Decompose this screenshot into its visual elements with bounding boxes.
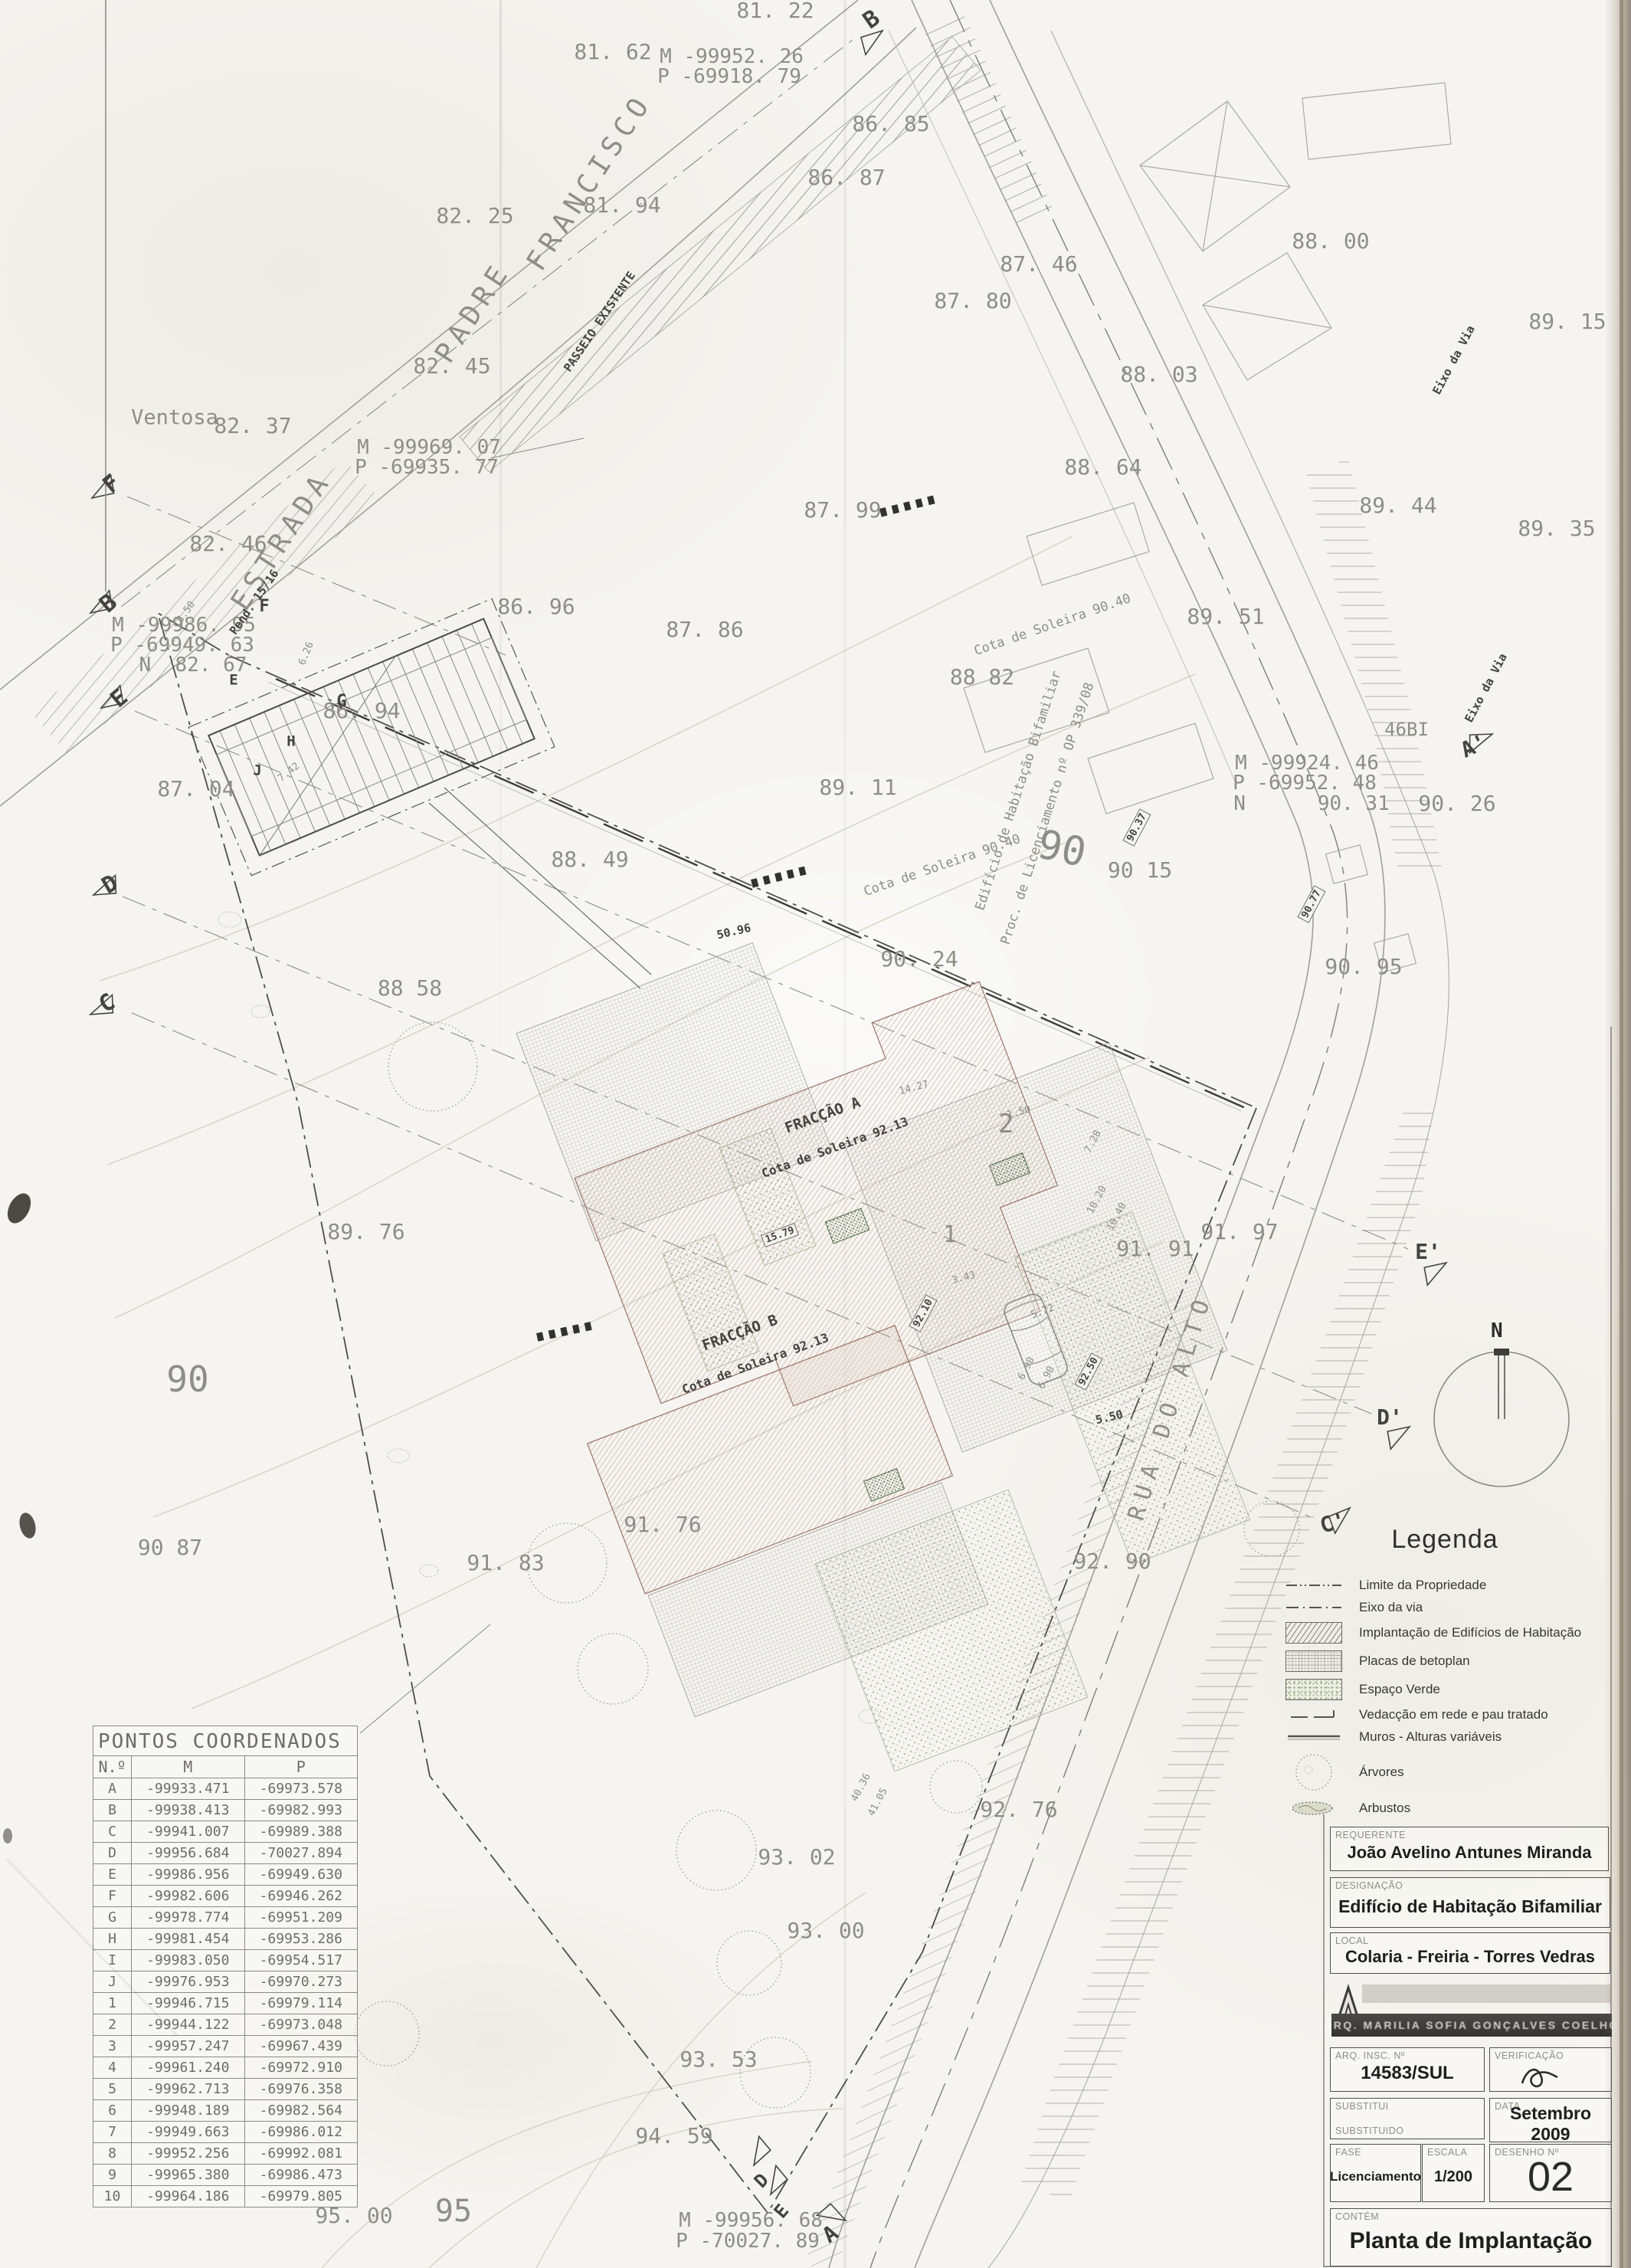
legend-item: Implantação de Edifícios de Habitação [1284,1622,1606,1644]
coord-cell: 4 [93,2057,132,2079]
coord-cell: 10 [93,2186,132,2207]
plan-label: N 90. 31 [1233,794,1390,814]
substitui-box: SUBSTITUI SUBSTITUIDO [1330,2098,1485,2139]
line-dashdot-icon [1284,1604,1344,1611]
table-row: 5-99962.713-69976.358 [93,2079,358,2100]
coord-cell: -99952.256 [132,2143,244,2165]
coord-cell: -99986.956 [132,1864,244,1886]
fase-box: FASE Licenciamento [1330,2144,1421,2202]
coordinates-table-panel: PONTOS COORDENADOS N.ºMP A-99933.471-699… [93,1726,358,2207]
coord-cell: -99938.413 [132,1800,244,1821]
plan-label: 91. 97 [1200,1221,1278,1243]
coord-cell: -69973.048 [244,2014,357,2036]
retaining-walls [429,788,651,988]
coordinates-table-title: PONTOS COORDENADOS [93,1726,358,1755]
coord-cell: -69954.517 [244,1950,357,1971]
scanned-site-plan-sheet: 81. 2281. 62M -99952. 26P -69918. 7986. … [0,0,1631,2268]
fence-icon [1284,1708,1344,1722]
coord-cell: -69979.114 [244,1993,357,2014]
plan-label: 95 [435,2196,472,2227]
fase-value: Licenciamento [1331,2145,1420,2201]
plan-label: 90. 26 [1418,793,1495,814]
coord-cell: 9 [93,2165,132,2186]
coord-cell: H [93,1929,132,1950]
coord-cell: -69982.993 [244,1800,357,1821]
plan-label: 88 82 [950,667,1014,688]
plan-label: 87. 80 [934,290,1011,312]
coord-cell: -70027.894 [244,1843,357,1864]
desenho-value: 02 [1490,2145,1611,2201]
escala-box: ESCALA 1/200 [1422,2144,1485,2202]
plan-label: 87. 86 [666,619,743,641]
coord-cell: -69951.209 [244,1907,357,1929]
plan-label: 86. 87 [807,167,885,188]
coord-cell: -99944.122 [132,2014,244,2036]
architect-name: ARQ. MARILIA SOFIA GONÇALVES COELHO [1324,2019,1620,2031]
legend-item-label: Árvores [1359,1765,1404,1780]
legend-items: Limite da PropriedadeEixo da viaImplanta… [1284,1578,1606,1817]
plan-label: 82. 25 [436,205,513,227]
plan-label: G [336,693,346,710]
plan-label: 90 [1034,824,1089,873]
table-row: 7-99949.663-69986.012 [93,2122,358,2143]
coord-cell: -69989.388 [244,1821,357,1843]
local-box: LOCAL Colaria - Freiria - Torres Vedras [1330,1932,1610,1974]
plan-label: P -70027. 89 [676,2231,820,2251]
coord-cell: -69953.286 [244,1929,357,1950]
coord-cell: 7 [93,2122,132,2143]
table-row: 3-99957.247-69967.439 [93,2036,358,2057]
hatch-grid-icon [1284,1650,1344,1672]
coord-cell: J [93,1971,132,1993]
coord-cell: -69967.439 [244,2036,357,2057]
table-row: 9-99965.380-69986.473 [93,2165,358,2186]
coord-cell: -99956.684 [132,1843,244,1864]
plan-label: 93. 00 [787,1920,864,1942]
plan-label: 90 [166,1362,208,1397]
plan-label: 89. 44 [1359,495,1436,516]
coord-cell: -99982.606 [132,1886,244,1907]
plan-label: 46BI [1384,720,1429,739]
coord-cell: 6 [93,2100,132,2122]
plan-label: M -99952. 26 [660,47,804,67]
stipple-green-icon [1284,1679,1344,1700]
arq-insc-box: ARQ. INSC. Nº 14583/SUL [1330,2047,1485,2092]
plan-label: E [229,674,237,688]
coord-cell: -99948.189 [132,2100,244,2122]
plan-label: 88. 49 [551,849,628,870]
plan-label: 87. 04 [157,778,234,800]
coord-cell: D [93,1843,132,1864]
plan-label: P -69952. 48 [1233,773,1377,793]
coord-cell: -99946.715 [132,1993,244,2014]
coord-cell: -69970.273 [244,1971,357,1993]
plan-label: 89. 11 [819,777,896,798]
legend-item-label: Vedacção em rede e pau tratado [1359,1707,1548,1722]
plan-label: 88. 00 [1292,231,1369,252]
legend-item: Árvores [1284,1752,1606,1793]
plan-label: 87. 99 [804,500,881,521]
plan-label: M -99924. 46 [1235,753,1379,773]
desenho-box: DESENHO Nº 02 [1489,2144,1612,2202]
plan-label: 82. 37 [214,415,291,437]
plan-label: D' [1377,1407,1403,1428]
coord-cell: 2 [93,2014,132,2036]
coord-cell: -69976.358 [244,2079,357,2100]
coord-cell: -69982.564 [244,2100,357,2122]
coord-cell: -69973.578 [244,1778,357,1800]
requerente-value: João Avelino Antunes Miranda [1331,1827,1608,1870]
plan-label: 90 87 [138,1537,202,1558]
title-block: REQUERENTE João Avelino Antunes Miranda … [1324,1808,1616,2268]
plan-label: 93. 53 [680,2049,757,2070]
legend-title: Legenda [1284,1525,1606,1555]
plan-label: 2 [998,1111,1014,1137]
coord-cell: -99978.774 [132,1907,244,1929]
legend-item-label: Placas de betoplan [1359,1653,1470,1669]
north-arrow [1434,1349,1569,1486]
north-label: N [1491,1319,1503,1342]
coord-column-header: M [132,1756,244,1778]
coord-cell: C [93,1821,132,1843]
plan-label: 89. 51 [1187,606,1264,628]
plan-label: J [253,764,261,778]
legend-item-label: Espaço Verde [1359,1682,1440,1697]
table-row: B-99938.413-69982.993 [93,1800,358,1821]
coord-cell: B [93,1800,132,1821]
coord-cell: -99949.663 [132,2122,244,2143]
coord-cell: -69979.805 [244,2186,357,2207]
legend-item: Espaço Verde [1284,1679,1606,1700]
coordinates-table-body: A-99933.471-69973.578B-99938.413-69982.9… [93,1778,358,2207]
data-value: Setembro 2009 [1490,2099,1611,2142]
coord-cell: F [93,1886,132,1907]
table-row: 8-99952.256-69992.081 [93,2143,358,2165]
coord-cell: -69949.630 [244,1864,357,1886]
requerente-box: REQUERENTE João Avelino Antunes Miranda [1330,1827,1609,1871]
coord-cell: -69946.262 [244,1886,357,1907]
plan-label: 86. 85 [852,113,929,135]
table-row: D-99956.684-70027.894 [93,1843,358,1864]
coord-cell: E [93,1864,132,1886]
table-row: E-99986.956-69949.630 [93,1864,358,1886]
plan-label: 88. 64 [1064,457,1141,478]
plan-label: 81. 62 [574,41,651,63]
coord-cell: -99957.247 [132,2036,244,2057]
legend-item-label: Eixo da via [1359,1600,1423,1615]
legend-item-label: Implantação de Edifícios de Habitação [1359,1625,1581,1640]
line-dashdotdot-icon [1284,1581,1344,1589]
plan-label: 92. 90 [1073,1551,1151,1572]
legend-panel: Legenda Limite da PropriedadeEixo da via… [1284,1525,1606,1824]
plan-label: 95. 00 [315,2205,392,2227]
arq-insc-value: 14583/SUL [1331,2048,1484,2091]
contem-box: CONTÉM Planta de Implantação [1330,2208,1612,2266]
table-row: C-99941.007-69989.388 [93,1821,358,1843]
verificacao-box: VERIFICAÇÃO [1489,2047,1612,2092]
coord-cell: -99976.953 [132,1971,244,1993]
plan-label: 89. 76 [327,1221,404,1243]
coord-cell: -99933.471 [132,1778,244,1800]
plan-label: 90. 24 [880,949,958,970]
coord-column-header: P [244,1756,357,1778]
plan-label: 86. 96 [497,596,575,618]
table-row: I-99983.050-69954.517 [93,1950,358,1971]
coord-cell: 8 [93,2143,132,2165]
table-row: G-99978.774-69951.209 [93,1907,358,1929]
plan-label: 89. 35 [1518,518,1595,539]
table-row: H-99981.454-69953.286 [93,1929,358,1950]
legend-item: Muros - Alturas variáveis [1284,1729,1606,1745]
substituido-label: SUBSTITUIDO [1335,2125,1404,2136]
plan-label: 92. 76 [980,1799,1057,1821]
plan-label: Ventosa [131,408,218,428]
coordinates-table: N.ºMP A-99933.471-69973.578B-99938.413-6… [93,1755,358,2207]
coord-cell: -69986.012 [244,2122,357,2143]
plan-label: 93. 02 [758,1847,835,1868]
substitui-label: SUBSTITUI [1335,2101,1389,2112]
legend-item: Limite da Propriedade [1284,1578,1606,1593]
plan-label: F [259,598,269,615]
coord-cell: A [93,1778,132,1800]
table-row: 4-99961.240-69972.910 [93,2057,358,2079]
table-row: 10-99964.186-69979.805 [93,2186,358,2207]
table-row: 6-99948.189-69982.564 [93,2100,358,2122]
plan-label: 86. 94 [323,700,400,722]
plan-label: 88 58 [378,978,442,999]
coord-cell: -69992.081 [244,2143,357,2165]
coord-cell: -99941.007 [132,1821,244,1843]
coord-cell: -99965.380 [132,2165,244,2186]
coord-cell: 1 [93,1993,132,2014]
designacao-box: DESIGNAÇÃO Edifício de Habitação Bifamil… [1330,1877,1610,1928]
coord-cell: 5 [93,2079,132,2100]
coord-column-header: N.º [93,1756,132,1778]
plan-label: 1 [943,1224,957,1247]
table-row: A-99933.471-69973.578 [93,1778,358,1800]
coord-cell: -69986.473 [244,2165,357,2186]
plan-label: 91. 91 [1116,1238,1194,1260]
table-row: F-99982.606-69946.262 [93,1886,358,1907]
tree-icon [1284,1752,1344,1793]
local-value: Colaria - Freiria - Torres Vedras [1331,1933,1610,1973]
plan-label: P -69935. 77 [355,457,499,477]
plan-label: 88. 03 [1120,364,1197,385]
plan-label: P -69949. 63 [110,635,254,655]
coord-cell: -99962.713 [132,2079,244,2100]
hatch-diagonal-icon [1284,1622,1344,1644]
plan-label: M -99969. 07 [357,438,501,457]
coord-cell: -99981.454 [132,1929,244,1950]
legend-item: Vedacção em rede e pau tratado [1284,1707,1606,1722]
data-box: DATA Setembro 2009 [1489,2098,1612,2142]
plan-label: 81. 22 [736,0,814,21]
plan-label: 91. 76 [624,1514,701,1535]
architect-logo: ARQ. MARILIA SOFIA GONÇALVES COELHO [1330,1978,1610,2041]
plan-label: 87. 46 [1000,254,1077,275]
wall-icon [1284,1733,1344,1741]
table-leader-line [360,1624,490,1733]
designacao-value: Edifício de Habitação Bifamiliar [1331,1878,1610,1927]
plan-label: P -69918. 79 [657,67,801,87]
logo-band [1362,1984,1610,2003]
coordinates-table-head: N.ºMP [93,1756,358,1778]
plan-label: M -99956. 68 [679,2211,823,2230]
legend-item: Eixo da via [1284,1600,1606,1615]
plan-label: H [287,735,295,749]
plan-label: 94. 59 [635,2125,712,2147]
legend-item-label: Muros - Alturas variáveis [1359,1729,1502,1745]
signature-icon [1511,2057,1580,2091]
plan-label: 90. 95 [1325,956,1402,978]
plan-label: E' [1415,1241,1441,1263]
coord-cell: -99983.050 [132,1950,244,1971]
coord-cell: 3 [93,2036,132,2057]
contem-value: Planta de Implantação [1331,2209,1611,2266]
plan-label: 91. 83 [467,1552,544,1574]
logo-name-band: ARQ. MARILIA SOFIA GONÇALVES COELHO [1331,2014,1612,2037]
legend-item: Placas de betoplan [1284,1650,1606,1672]
coord-cell: -69972.910 [244,2057,357,2079]
coord-cell: -99964.186 [132,2186,244,2207]
coord-cell: G [93,1907,132,1929]
coord-cell: -99961.240 [132,2057,244,2079]
table-row: 1-99946.715-69979.114 [93,1993,358,2014]
legend-item-label: Limite da Propriedade [1359,1578,1486,1593]
plan-label: 89. 15 [1528,311,1606,333]
coord-cell: I [93,1950,132,1971]
plan-label: 90 15 [1108,860,1172,881]
escala-value: 1/200 [1423,2145,1484,2201]
table-row: J-99976.953-69970.273 [93,1971,358,1993]
table-row: 2-99944.122-69973.048 [93,2014,358,2036]
